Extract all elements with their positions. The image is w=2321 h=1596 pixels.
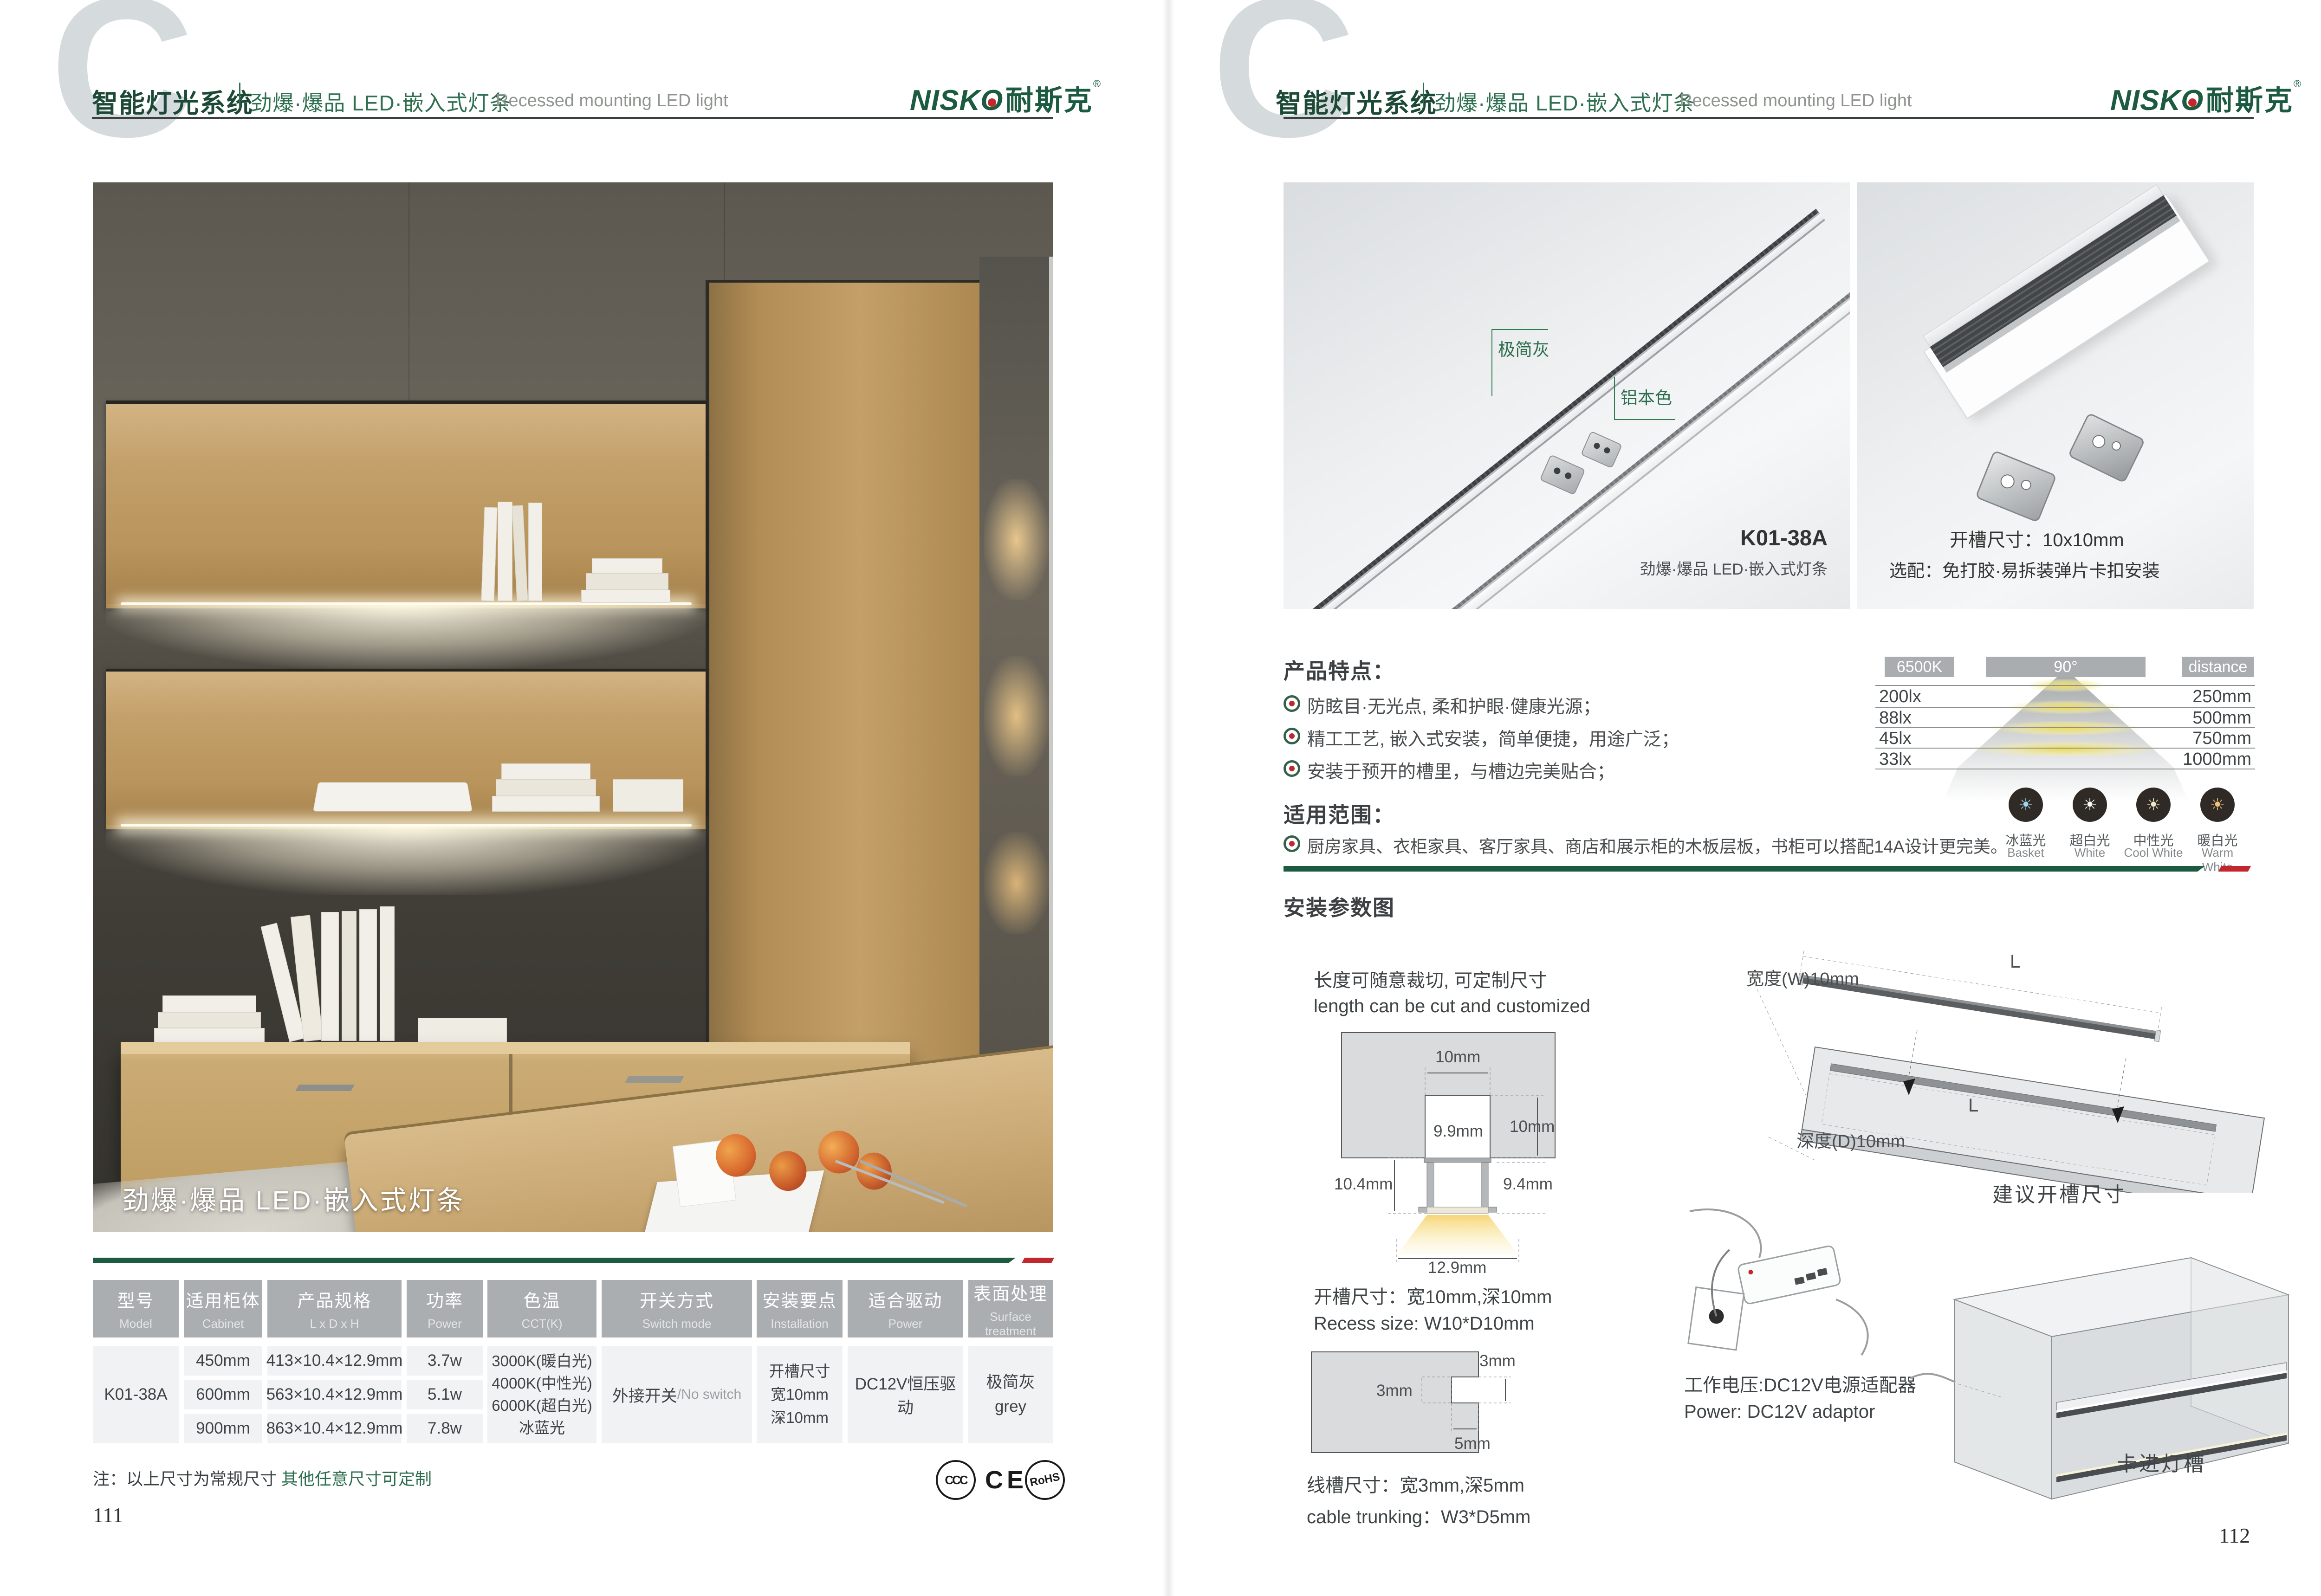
board-length-label-2: L <box>1968 1095 1978 1116</box>
lux-value: 200lx <box>1879 687 1921 707</box>
photo-b-line1: 开槽尺寸：10x10mm <box>1950 525 2124 552</box>
chart-temp-header: 6500K <box>1885 657 1954 677</box>
mounting-clip-large <box>2068 412 2146 483</box>
book-flat <box>418 1018 507 1043</box>
swatch-label-en: Basket <box>1993 846 2058 860</box>
section-divider-red <box>2218 866 2251 872</box>
feature-bullet-icon <box>1284 728 1300 744</box>
page-title-series-en: Recessed mounting LED light <box>496 91 728 111</box>
beam-ellipse <box>1971 741 2161 757</box>
rohs-cert-icon: RoHS <box>1021 1456 1069 1504</box>
table-header-cct: 色温CCT(K) <box>487 1280 596 1338</box>
photo-b-line2: 选配：免打胶·易拆装弹片卡扣安装 <box>1889 556 2160 582</box>
distance-value: 250mm <box>2192 687 2251 707</box>
adaptor-illustration <box>1671 1207 1885 1360</box>
page-number-left: 111 <box>93 1503 123 1527</box>
book <box>592 558 662 573</box>
trunking-diagram: 3mm 3mm 5mm <box>1307 1344 1520 1460</box>
book-stack <box>492 796 600 812</box>
book <box>321 912 339 1041</box>
note-black: 注：以上尺寸为常规尺寸 <box>93 1469 281 1488</box>
cell-power-row1: 3.7w <box>407 1346 483 1376</box>
logo-registered-mark: ® <box>2294 78 2301 90</box>
feature-bullet-icon <box>1284 760 1300 777</box>
book <box>528 503 542 601</box>
note-green: 其他任意尺寸可定制 <box>281 1469 432 1488</box>
cell-spec-row1: 413×10.4×12.9mm <box>267 1346 402 1376</box>
book-stack <box>158 1012 261 1028</box>
header-rule <box>1284 117 2254 119</box>
section-divider-green <box>1284 866 2205 872</box>
features-title: 产品特点： <box>1284 654 1395 685</box>
cell-spec-row3: 863×10.4×12.9mm <box>267 1414 402 1443</box>
cell-spec-row2: 563×10.4×12.9mm <box>267 1380 402 1409</box>
cabinet-drawing <box>1903 1202 2312 1513</box>
book <box>498 502 512 601</box>
mounting-clip <box>1539 454 1585 495</box>
header-divider-bar <box>1423 83 1424 108</box>
photo-caption: 劲爆·爆品 LED·嵌入式灯条 <box>123 1179 465 1217</box>
beam-ellipse <box>1989 720 2142 736</box>
trunk-dim-c: 5mm <box>1454 1434 1491 1453</box>
book-stack <box>162 995 256 1012</box>
page-title-series: 劲爆·爆品 LED·嵌入式灯条 <box>1434 86 1695 117</box>
table-header-installation: 安装要点Installation <box>757 1280 843 1338</box>
mounting-clip-large <box>1975 450 2057 523</box>
chart-distance-header: distance <box>2182 657 2254 677</box>
light-color-icon-coolwhite: ☀ <box>2136 788 2171 822</box>
logo-text-zh: 耐斯克 <box>1005 85 1093 116</box>
page-number-right: 112 <box>2219 1523 2250 1548</box>
trunk-dim-a: 3mm <box>1479 1352 1516 1370</box>
table-header-driver: 适合驱动Power <box>848 1280 963 1338</box>
logo-o-red-dot-icon: O <box>980 84 1003 117</box>
page-title-brand: 智能灯光系统 <box>1276 83 1437 120</box>
book <box>581 590 670 603</box>
feature-bullet-icon <box>1284 695 1300 712</box>
logo-text-en: NISKO <box>2110 84 2204 116</box>
hero-photo: 劲爆·爆品 LED·嵌入式灯条 <box>93 182 1053 1232</box>
header-divider-bar <box>239 83 240 108</box>
feature-item: 精工工艺, 嵌入式安装，简单便捷，用途广泛； <box>1307 725 1679 751</box>
chart-gridline <box>1875 707 2255 708</box>
led-strip-line-2 <box>121 824 692 827</box>
trunking-size-en: cable trunking：W3*D5mm <box>1307 1502 1530 1529</box>
table-header-power: 功率Power <box>407 1280 483 1338</box>
glass-warm-glow <box>984 656 1049 776</box>
cut-note-zh: 长度可随意裁切, 可定制尺寸 <box>1314 965 1547 992</box>
scope-bullet-icon <box>1284 835 1300 852</box>
cut-note-en: length can be cut and customized <box>1314 996 1590 1017</box>
adaptor-drawing <box>1671 1207 1885 1360</box>
swatch-label-en: White <box>2057 846 2122 860</box>
logo-o-red-dot-icon: O <box>2181 84 2204 117</box>
tray <box>313 782 473 812</box>
feature-item: 防眩目·无光点, 柔和护眼·健康光源； <box>1307 692 1601 718</box>
distance-value: 500mm <box>2192 708 2251 728</box>
book <box>380 906 395 1041</box>
light-color-icon-warmwhite: ☀ <box>2200 788 2235 822</box>
chart-angle-header: 90° <box>1986 657 2146 677</box>
page-title-series: 劲爆·爆品 LED·嵌入式灯条 <box>251 86 512 117</box>
catalog-spread: { "header": { "brand": "智能灯光系统", "series… <box>0 0 2321 1596</box>
logo-text-zh: 耐斯克 <box>2206 85 2294 116</box>
dim-top-width: 10mm <box>1435 1048 1480 1066</box>
install-title: 安装参数图 <box>1284 891 1395 922</box>
cell-cct: 3000K(暖白光)4000K(中性光)6000K(超白光)冰蓝光 <box>487 1346 596 1443</box>
board-length-label-1: L <box>2010 951 2020 972</box>
table-header-model: 型号Model <box>93 1280 179 1338</box>
logo-registered-mark: ® <box>1093 78 1101 90</box>
page-right: C 智能灯光系统 劲爆·爆品 LED·嵌入式灯条 Recessed mounti… <box>1168 0 2321 1596</box>
photo-model-caption: 劲爆·爆品 LED·嵌入式灯条 <box>1640 556 1828 579</box>
table-header-surface: 表面处理Surface treatment <box>968 1280 1053 1338</box>
cell-driver: DC12V恒压驱动 <box>848 1346 963 1443</box>
feature-item: 安装于预开的槽里，与槽边完美贴合； <box>1307 757 1615 783</box>
lux-value: 88lx <box>1879 708 1912 728</box>
brand-logo: NISKO 耐斯克® <box>910 78 1101 118</box>
cell-model: K01-38A <box>93 1346 179 1443</box>
page-title-series-en: Recessed mounting LED light <box>1679 91 1912 111</box>
brand-logo: NISKO 耐斯克® <box>2110 78 2301 118</box>
cross-section-diagram: 10mm 10mm 9.9mm 10.4mm 9.4mm 12.9mm <box>1332 1021 1574 1272</box>
glass-warm-glow <box>984 832 1049 934</box>
photo-model-code: K01-38A <box>1740 525 1828 550</box>
mounting-clip <box>1581 431 1622 468</box>
trunking-size-zh: 线槽尺寸：宽3mm,深5mm <box>1307 1470 1524 1497</box>
lux-value: 45lx <box>1879 729 1912 749</box>
dim-bottom-width: 12.9mm <box>1428 1259 1486 1277</box>
trunk-dim-b: 3mm <box>1376 1382 1413 1400</box>
distance-value: 750mm <box>2192 729 2251 749</box>
book <box>359 909 377 1041</box>
book <box>586 573 668 590</box>
page-title-brand: 智能灯光系统 <box>92 83 253 120</box>
header-rule <box>92 117 1053 119</box>
cabinet-illustration <box>1903 1202 2312 1513</box>
book-stack <box>613 779 683 812</box>
cell-cabinet-row1: 450mm <box>184 1346 262 1376</box>
photometric-chart: 6500K 90° distance 200lx 88lx 45lx 33lx … <box>1875 654 2255 859</box>
color-label-gray: 极简灰 <box>1498 336 1549 361</box>
recess-size-en: Recess size: W10*D10mm <box>1314 1313 1535 1334</box>
cell-switch: 外接开关/No switch <box>602 1346 752 1443</box>
ce-cert-icon: CE <box>985 1466 1027 1494</box>
dim-right-depth: 10mm <box>1510 1118 1555 1136</box>
logo-text-en: NISKO <box>910 84 1003 116</box>
board-depth-label: 深度(D)10mm <box>1796 1127 1905 1152</box>
cell-cabinet-row2: 600mm <box>184 1380 262 1409</box>
working-voltage-en: Power: DC12V adaptor <box>1684 1402 1875 1422</box>
table-header-cabinet: 适用柜体Cabinet <box>184 1280 262 1338</box>
cell-installation: 开槽尺寸宽10mm深10mm <box>757 1346 843 1443</box>
dim-inner-width: 9.9mm <box>1433 1122 1483 1141</box>
sideboard-top-face <box>121 1042 910 1054</box>
product-photo-bars: 极简灰 铝本色 K01-38A 劲爆·爆品 LED·嵌入式灯条 <box>1284 182 1850 609</box>
book-stack <box>496 779 596 796</box>
light-color-icon-iceblue: ☀ <box>2009 788 2043 822</box>
ccc-cert-icon: CCC <box>936 1460 976 1500</box>
table-header-spec: 产品规格L x D x H <box>267 1280 402 1338</box>
cell-cabinet-row3: 900mm <box>184 1414 262 1443</box>
cell-power-row3: 7.8w <box>407 1414 483 1443</box>
product-photo-profile: 开槽尺寸：10x10mm 选配：免打胶·易拆装弹片卡扣安装 <box>1857 182 2254 609</box>
cell-surface: 极简灰grey <box>968 1346 1053 1443</box>
drawer-handle <box>295 1085 355 1091</box>
drawer-handle <box>625 1076 684 1083</box>
book-stack <box>501 763 590 779</box>
book <box>342 911 357 1041</box>
light-color-icon-white: ☀ <box>2073 788 2107 822</box>
scope-title: 适用范围： <box>1284 798 1395 829</box>
wall-seam <box>408 182 409 405</box>
color-label-aluminum: 铝本色 <box>1621 384 1672 409</box>
lux-value: 33lx <box>1879 750 1912 769</box>
swatch-label-en: Cool White <box>2121 846 2186 860</box>
recess-size-zh: 开槽尺寸：宽10mm,深10mm <box>1314 1282 1552 1309</box>
working-voltage-zh: 工作电压:DC12V电源适配器 <box>1684 1370 1916 1397</box>
chart-gridline <box>1875 685 2255 686</box>
led-glow-1 <box>106 604 706 669</box>
section-divider-green <box>93 1258 1016 1263</box>
dim-right-height: 9.4mm <box>1503 1175 1553 1194</box>
dim-left-height: 10.4mm <box>1334 1175 1393 1194</box>
distance-value: 1000mm <box>2183 750 2251 769</box>
table-header-switch: 开关方式Switch mode <box>602 1280 752 1338</box>
page-left: C 智能灯光系统 劲爆·爆品 LED·嵌入式灯条 Recessed mounti… <box>0 0 1168 1596</box>
cell-power-row2: 5.1w <box>407 1380 483 1409</box>
table-note: 注：以上尺寸为常规尺寸 其他任意尺寸可定制 <box>93 1466 432 1490</box>
section-divider-red <box>1022 1258 1054 1263</box>
book-stack <box>154 1028 265 1043</box>
led-glow-2 <box>106 825 706 895</box>
glass-warm-glow <box>984 479 1049 600</box>
board-width-label: 宽度(W)10mm <box>1746 964 1859 990</box>
cabinet-caption: 卡进灯槽 <box>2117 1447 2206 1477</box>
